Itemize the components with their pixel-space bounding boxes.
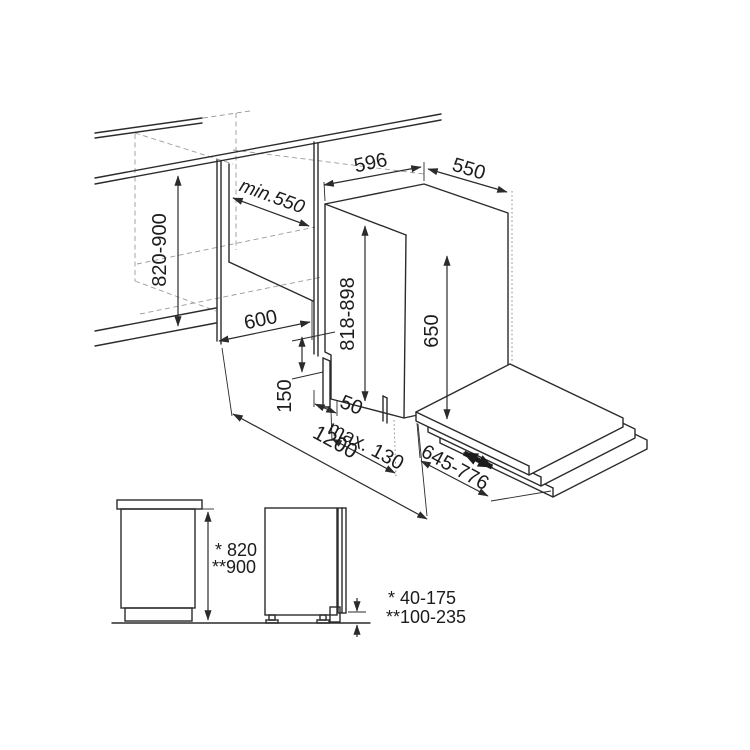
cabinet-side-view: * 820 **900 xyxy=(117,500,257,621)
ext-150-bottom xyxy=(292,372,323,379)
ext-645-right xyxy=(491,491,551,501)
label-650: 650 xyxy=(421,314,443,347)
dw-foot-rear-stem xyxy=(320,615,326,620)
ext-1200-left xyxy=(222,348,232,416)
cabinet-base-edge-bottom xyxy=(95,323,216,346)
counter-front-edge-bottom xyxy=(95,120,441,184)
label-niche-height: 820-900 xyxy=(149,213,171,286)
hidden-wall-edge xyxy=(203,111,250,118)
cabinet-body xyxy=(121,509,195,608)
dishwasher-side-view: * 40-175 **100-235 xyxy=(112,508,466,637)
label-worktop-height-alt: **900 xyxy=(212,557,256,577)
cabinet-plinth xyxy=(125,608,192,621)
label-150: 150 xyxy=(274,379,296,412)
label-foot-range-alt: **100-235 xyxy=(386,607,466,627)
label-width-596: 596 xyxy=(352,149,389,177)
plinth-panel-top xyxy=(323,358,330,361)
dw-foot-front-stem xyxy=(269,615,275,620)
dim-line-50 xyxy=(315,404,336,413)
cabinet-worktop xyxy=(117,500,202,509)
cabinet-base-edge-top xyxy=(95,308,216,331)
dw-body xyxy=(265,508,337,615)
counter-front-edge-top xyxy=(95,114,441,178)
niche-opening xyxy=(95,142,330,407)
label-height-818-898: 818-898 xyxy=(337,277,359,350)
hidden-cabinet-top-edge xyxy=(135,133,233,164)
label-depth-550: 550 xyxy=(450,154,488,185)
dishwasher-installation-diagram: 820-900 min.550 596 550 600 818-898 650 … xyxy=(0,0,750,750)
label-foot-range-std: * 40-175 xyxy=(388,588,456,608)
ext-1200-right xyxy=(418,424,427,516)
installation-diagram-page: 820-900 min.550 596 550 600 818-898 650 … xyxy=(0,0,750,750)
